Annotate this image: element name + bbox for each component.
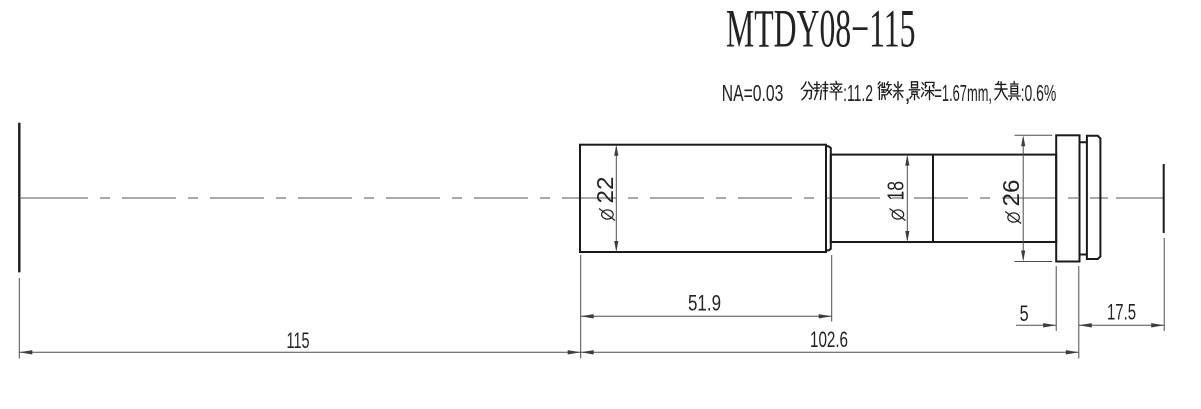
svg-text:5: 5 [1020,301,1029,326]
svg-text:22: 22 [592,177,618,204]
svg-text:51.9: 51.9 [688,291,721,316]
svg-text:26: 26 [998,180,1024,207]
svg-text:MTDY08−115: MTDY08−115 [726,0,916,59]
svg-text:102.6: 102.6 [810,327,848,352]
svg-text:NA=0.03: NA=0.03 [722,80,784,106]
svg-text:,: , [904,80,910,106]
svg-text:=1.67mm,: =1.67mm, [934,80,992,106]
svg-text::11.2: :11.2 [843,80,873,106]
svg-text:115: 115 [287,328,310,353]
svg-text:18: 18 [883,181,909,201]
svg-text::0.6%: :0.6% [1021,80,1057,106]
svg-text:17.5: 17.5 [1107,300,1136,325]
